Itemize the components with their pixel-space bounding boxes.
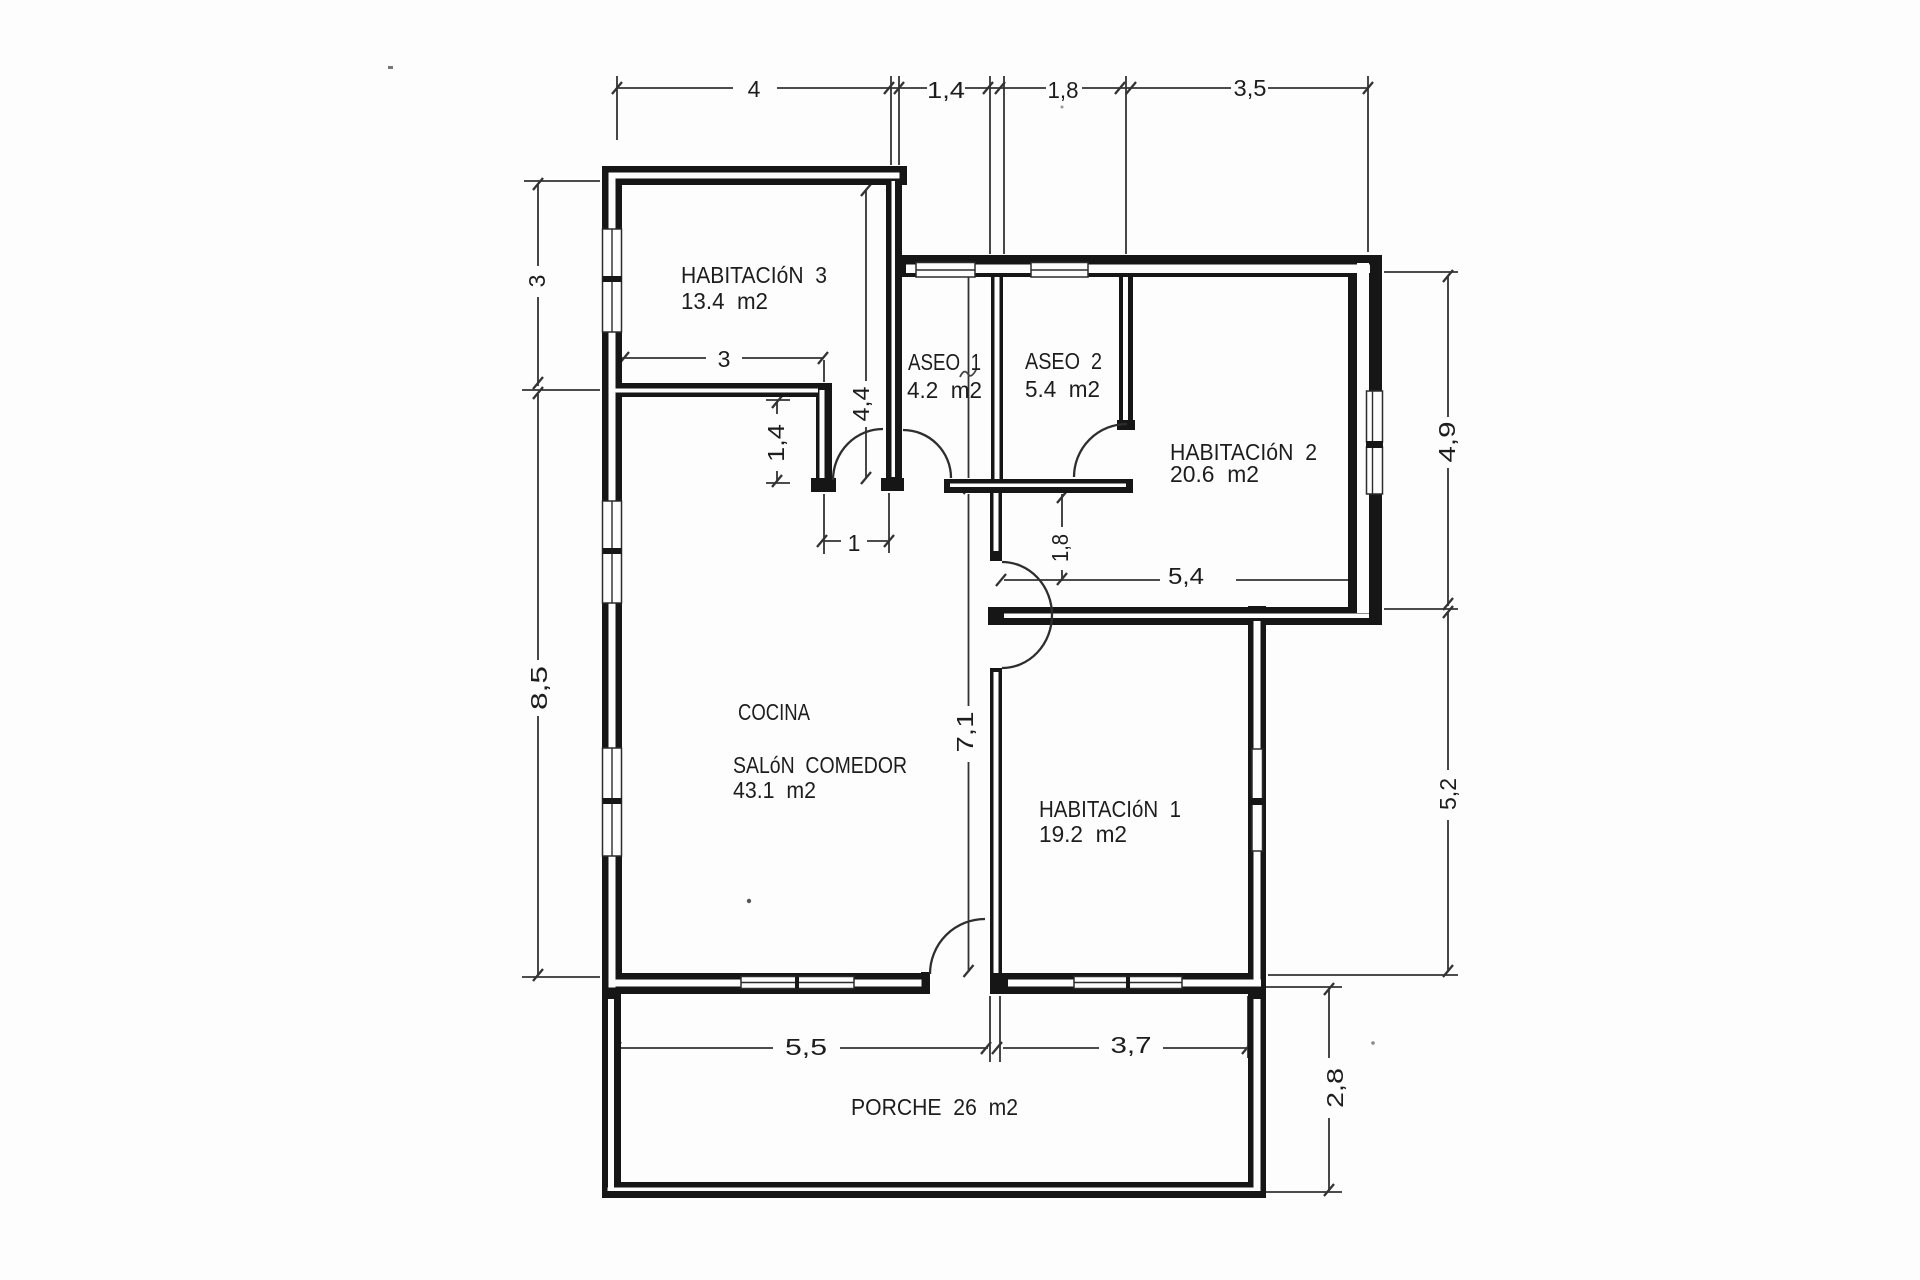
svg-text:SALóN COMEDOR: SALóN COMEDOR <box>733 752 907 778</box>
svg-text:7,1: 7,1 <box>952 712 978 753</box>
svg-text:43.1 m2: 43.1 m2 <box>733 777 816 803</box>
svg-text:1,8: 1,8 <box>1048 77 1079 103</box>
svg-text:1,4: 1,4 <box>763 424 789 462</box>
svg-text:3,7: 3,7 <box>1111 1032 1152 1058</box>
svg-text:5.4 m2: 5.4 m2 <box>1025 376 1100 402</box>
svg-text:3: 3 <box>524 275 550 288</box>
svg-text:4,4: 4,4 <box>848 386 874 421</box>
svg-text:5,4: 5,4 <box>1168 563 1204 589</box>
svg-text:20.6 m2: 20.6 m2 <box>1170 461 1259 487</box>
svg-text:4.2 m2: 4.2 m2 <box>907 377 982 403</box>
svg-text:3: 3 <box>718 346 731 372</box>
svg-text:PORCHE 26 m2: PORCHE 26 m2 <box>851 1094 1018 1120</box>
svg-text:4: 4 <box>748 76 761 102</box>
svg-text:3,5: 3,5 <box>1234 75 1267 101</box>
svg-text:COCINA: COCINA <box>738 699 811 725</box>
svg-text:1,8: 1,8 <box>1047 534 1073 562</box>
svg-text:ASEO 2: ASEO 2 <box>1025 348 1102 374</box>
svg-text:1,4: 1,4 <box>927 77 965 103</box>
svg-text:2,8: 2,8 <box>1322 1068 1348 1108</box>
svg-text:4,9: 4,9 <box>1434 422 1460 463</box>
svg-text:HABITACIóN 3: HABITACIóN 3 <box>681 262 827 288</box>
svg-text:8,5: 8,5 <box>526 666 552 710</box>
svg-text:19.2 m2: 19.2 m2 <box>1039 821 1127 847</box>
svg-text:ASEO 1: ASEO 1 <box>908 349 981 375</box>
svg-text:1: 1 <box>848 530 861 556</box>
svg-text:13.4 m2: 13.4 m2 <box>681 288 768 314</box>
svg-text:5,2: 5,2 <box>1435 778 1461 810</box>
svg-text:HABITACIóN 1: HABITACIóN 1 <box>1039 796 1181 822</box>
svg-text:5,5: 5,5 <box>785 1034 827 1060</box>
